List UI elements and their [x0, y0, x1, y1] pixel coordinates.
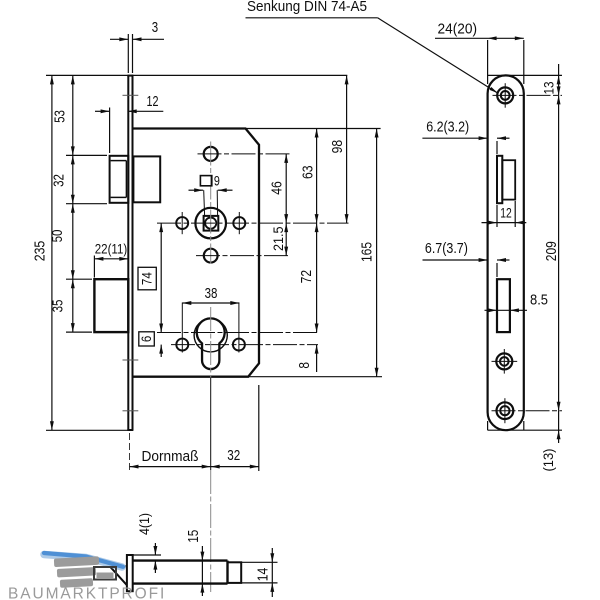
svg-text:6.7(3.7): 6.7(3.7): [425, 241, 468, 257]
svg-text:3: 3: [152, 20, 158, 36]
svg-text:22(11): 22(11): [95, 241, 128, 257]
svg-text:35: 35: [50, 300, 66, 313]
svg-text:8.5: 8.5: [530, 293, 548, 309]
svg-text:13: 13: [541, 81, 557, 94]
svg-text:12: 12: [500, 205, 512, 221]
svg-text:74: 74: [140, 272, 155, 285]
svg-text:38: 38: [205, 286, 218, 302]
svg-text:(13): (13): [540, 449, 556, 472]
svg-text:50: 50: [50, 230, 66, 243]
svg-text:165: 165: [359, 242, 375, 262]
svg-text:8: 8: [297, 362, 313, 369]
svg-text:6: 6: [139, 336, 154, 342]
svg-text:32: 32: [52, 174, 68, 187]
svg-text:32: 32: [227, 448, 240, 464]
svg-text:12: 12: [147, 94, 159, 110]
svg-text:15: 15: [186, 530, 202, 543]
svg-text:Senkung DIN 74-A5: Senkung DIN 74-A5: [247, 0, 367, 15]
svg-text:209: 209: [544, 241, 560, 261]
svg-text:98: 98: [330, 140, 346, 154]
svg-text:24(20): 24(20): [438, 22, 478, 38]
svg-text:72: 72: [299, 270, 315, 284]
svg-text:63: 63: [301, 166, 317, 180]
svg-text:46: 46: [270, 181, 286, 195]
svg-text:Dornmaß: Dornmaß: [142, 449, 199, 465]
svg-text:6.2(3.2): 6.2(3.2): [426, 120, 469, 136]
svg-text:235: 235: [33, 241, 49, 262]
svg-text:21.5: 21.5: [270, 226, 286, 251]
svg-text:53: 53: [52, 110, 68, 123]
svg-text:BAUMARKTPROFI: BAUMARKTPROFI: [8, 586, 166, 600]
svg-text:14: 14: [256, 568, 272, 582]
svg-text:9: 9: [214, 174, 220, 189]
svg-text:4(1): 4(1): [136, 513, 152, 535]
